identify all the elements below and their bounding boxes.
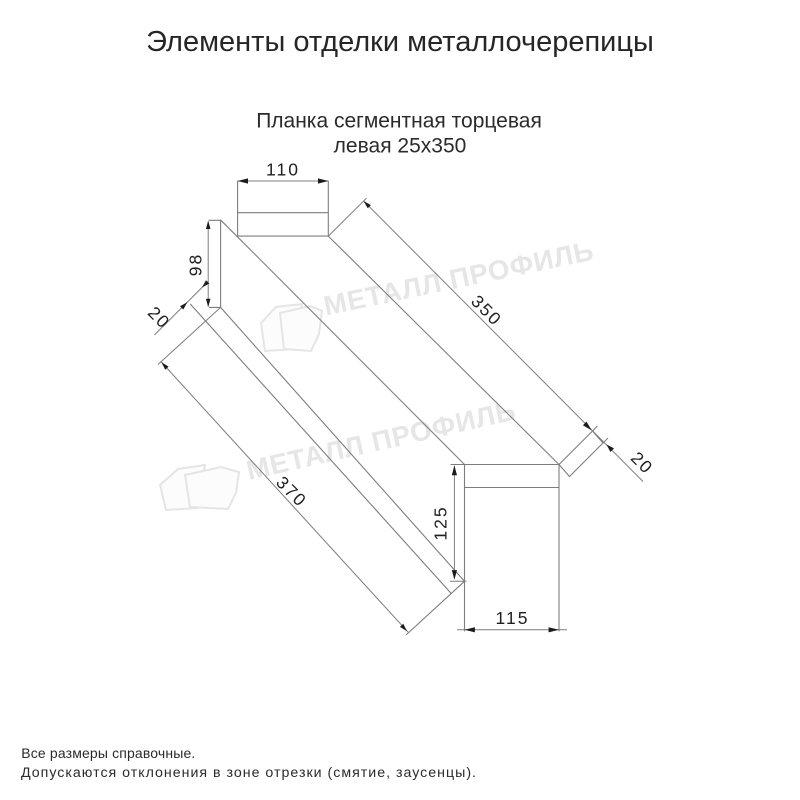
svg-text:Элементы отделки металлочерепи: Элементы отделки металлочерепицы (146, 26, 654, 58)
svg-text:98: 98 (186, 253, 206, 276)
svg-text:Допускаются отклонения в зоне: Допускаются отклонения в зоне отрезки (с… (21, 765, 477, 781)
svg-text:Все размеры справочные.: Все размеры справочные. (21, 745, 195, 761)
svg-text:110: 110 (266, 160, 300, 180)
svg-text:Планка сегментная торцевая: Планка сегментная торцевая (256, 109, 542, 132)
svg-text:125: 125 (431, 505, 451, 540)
svg-text:левая 25x350: левая 25x350 (334, 134, 467, 157)
svg-text:115: 115 (496, 608, 530, 628)
